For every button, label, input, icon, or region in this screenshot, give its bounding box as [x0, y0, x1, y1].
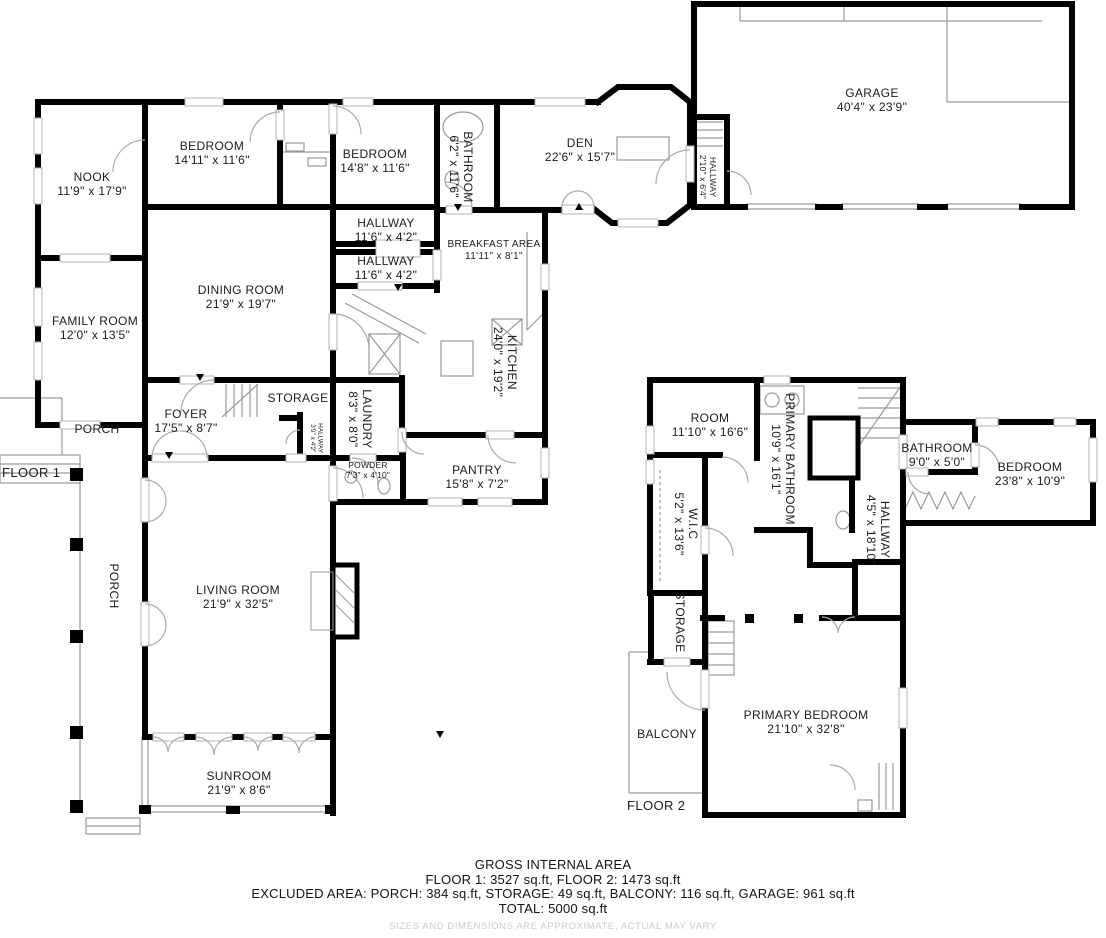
room-label-bathroom-f1: BATHROOM6'2" x 11'6"	[447, 131, 475, 202]
room-label-living-room: LIVING ROOM21'9" x 32'5"	[196, 583, 280, 611]
room-label-primary-bathroom: PRIMARY BATHROOM10'9" x 16'1"	[769, 393, 797, 525]
shower-box	[810, 418, 858, 478]
area-summary: GROSS INTERNAL AREA FLOOR 1: 3527 sq.ft,…	[0, 858, 1106, 935]
room-label-family-room: FAMILY ROOM12'0" x 13'5"	[52, 314, 138, 342]
room-label-den: DEN22'6" x 15'7"	[545, 136, 615, 164]
room-label-hallway-f2: HALLWAY4'5" x 18'10"	[864, 495, 892, 565]
room-label-hallway1: HALLWAY11'6" x 4'2"	[355, 216, 417, 244]
summary-floors: FLOOR 1: 3527 sq.ft, FLOOR 2: 1473 sq.ft	[0, 873, 1106, 888]
summary-excluded: EXCLUDED AREA: PORCH: 384 sq.ft, STORAGE…	[0, 887, 1106, 902]
room-label-balcony: BALCONY	[637, 727, 697, 741]
room-label-powder: POWDER7'3" x 4'10"	[346, 460, 390, 480]
floor2-label: FLOOR 2	[627, 798, 685, 813]
room-label-sunroom: SUNROOM21'9" x 8'6"	[206, 769, 271, 797]
room-label-wic: W.I.C5'2" x 13'6"	[672, 492, 700, 555]
room-label-storage-f1: STORAGE	[268, 391, 329, 405]
summary-total: TOTAL: 5000 sq.ft	[0, 902, 1106, 917]
room-label-hallway-garage: HALLWAY2'10" x 6'4"	[698, 155, 718, 199]
room-label-pantry: PANTRY15'8" x 7'2"	[445, 463, 508, 491]
room-label-breakfast-area: BREAKFAST AREA11'11" x 8'1"	[447, 239, 540, 263]
room-label-porch-front: PORCH	[74, 422, 119, 436]
room-label-bedroom2: BEDROOM14'8" x 11'6"	[340, 147, 409, 175]
room-label-bedroom1: BEDROOM14'11" x 11'6"	[174, 139, 250, 167]
floorplan-page: NOOK11'9" x 17'9" BEDROOM14'11" x 11'6" …	[0, 0, 1106, 938]
room-label-dining-room: DINING ROOM21'9" x 19'7"	[198, 283, 285, 311]
floor1-label: FLOOR 1	[2, 465, 60, 480]
room-label-room-f2: ROOM11'10" x 16'6"	[672, 411, 749, 439]
room-label-kitchen: KITCHEN24'0" x 19'2"	[491, 327, 519, 397]
room-label-laundry: LAUNDRY8'3" x 8'0"	[346, 389, 374, 449]
room-label-garage: GARAGE40'4" x 23'9"	[837, 86, 907, 114]
room-label-storage-f2: STORAGE	[673, 592, 687, 653]
summary-disclaimer: SIZES AND DIMENSIONS ARE APPROXIMATE, AC…	[0, 920, 1106, 935]
room-label-hallway2: HALLWAY11'6" x 4'2"	[355, 254, 417, 282]
room-label-nook: NOOK11'9" x 17'9"	[57, 170, 126, 198]
summary-title: GROSS INTERNAL AREA	[0, 858, 1106, 873]
room-label-bedroom-f2: BEDROOM23'8" x 10'9"	[995, 460, 1065, 488]
room-label-foyer: FOYER17'5" x 8'7"	[154, 407, 217, 435]
room-label-hallway-small: HALLWAY3'9" x 4'2"	[308, 423, 323, 453]
room-label-bathroom-f2: BATHROOM9'0" x 5'0"	[901, 441, 972, 469]
room-label-primary-bedroom: PRIMARY BEDROOM21'10" x 32'8"	[744, 708, 869, 736]
room-label-porch-side: PORCH	[107, 563, 121, 608]
